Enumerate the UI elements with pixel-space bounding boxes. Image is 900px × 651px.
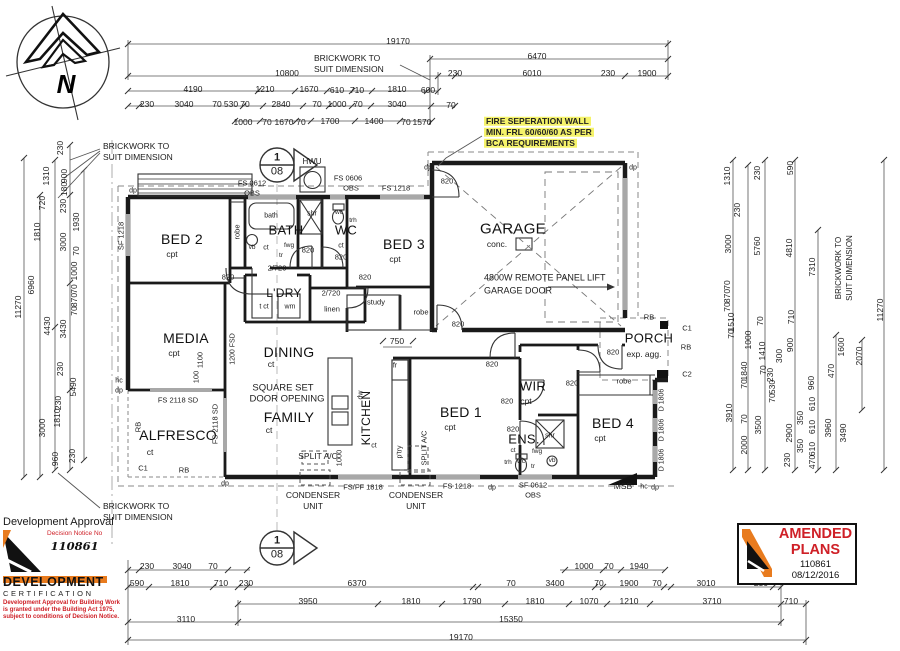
plan-label: CONDENSER xyxy=(286,491,340,500)
dimension-text: 1000 xyxy=(70,262,79,281)
dimension-text: 4810 xyxy=(785,239,794,258)
dimension-text: 230 xyxy=(733,203,742,217)
decision-notice-label: Decision Notice No xyxy=(47,530,102,537)
dimension-text: 15350 xyxy=(499,615,523,624)
porch-post-c2 xyxy=(657,370,668,378)
dimension-text: 300 xyxy=(775,349,784,363)
dimension-text: 3500 xyxy=(754,416,763,435)
dimension-text: 1940 xyxy=(630,562,649,571)
dimension-text: 350 xyxy=(796,439,805,453)
room-garage: GARAGE xyxy=(480,222,546,237)
dimension-text: 3000 xyxy=(59,233,68,252)
amended-line2: PLANS xyxy=(776,543,855,558)
dimension-text: 1410 xyxy=(758,342,767,361)
room-ens: ENS. xyxy=(508,433,540,446)
dimension-text: 1670 xyxy=(275,118,294,127)
dimension-text: 70 xyxy=(506,579,515,588)
dimension-text: 1810 xyxy=(402,597,421,606)
plan-label: FS 1218 xyxy=(443,482,471,490)
section-marker-sheet: 08 xyxy=(271,167,283,178)
dimension-text: 960 xyxy=(807,376,816,390)
dimension-text: 11270 xyxy=(14,295,23,318)
plan-label: vb xyxy=(249,245,256,252)
plan-label: robe xyxy=(233,224,241,239)
dimension-text: 70 xyxy=(72,246,81,255)
plan-label: SPLIT A/C xyxy=(420,431,428,466)
dimension-text: 1930 xyxy=(72,213,81,232)
plan-label: BRICKWORK TO xyxy=(103,502,169,511)
dimension-text: 1810 xyxy=(33,223,42,242)
room-bed4: BED 4 xyxy=(592,416,634,430)
plan-label: ct xyxy=(263,245,268,252)
dimension-text: 3950 xyxy=(299,597,318,606)
dimension-text: 3040 xyxy=(388,100,407,109)
dev-fine-print-2: is granted under the Building Act 1975, xyxy=(3,607,125,614)
development-certification-logo-icon xyxy=(3,530,43,574)
plan-label: shr xyxy=(545,433,555,440)
dimension-text: 820 xyxy=(222,273,235,281)
dimension-text: 1600 xyxy=(837,338,846,357)
dimension-text: 470 xyxy=(808,455,817,469)
dimension-text: 1810 xyxy=(526,597,545,606)
dimension-text: 70 xyxy=(604,562,613,571)
plan-label: RB xyxy=(644,313,654,321)
section-marker-sheet: 08 xyxy=(271,550,283,561)
dimension-text: 11270 xyxy=(876,298,885,321)
plan-label: RB xyxy=(134,422,142,432)
dimension-text: 70 xyxy=(756,316,765,325)
plan-label: dp xyxy=(651,485,659,492)
plan-label: D 1806 xyxy=(659,419,666,442)
compass-letter: N xyxy=(57,71,76,97)
plan-label: BRICKWORK TO xyxy=(103,142,169,151)
room-alfresco: ALFRESCO xyxy=(139,428,217,442)
dimension-text: 1790 xyxy=(463,597,482,606)
dimension-text: 6370 xyxy=(348,579,367,588)
plan-label: SUIT DIMENSION xyxy=(314,65,384,74)
dimension-text: 820 xyxy=(441,177,454,185)
room-bed3: BED 3 xyxy=(383,237,425,251)
plan-label: ct xyxy=(268,360,275,369)
dimension-text: 1700 xyxy=(321,117,340,126)
dimension-text: 230 xyxy=(601,69,615,78)
dimension-text: 70 xyxy=(652,579,661,588)
room-wc: WC xyxy=(335,224,357,237)
room-bath: BATH xyxy=(269,224,304,237)
note-fire-separation: BCA REQUIREMENTS xyxy=(484,139,577,148)
dimension-text: 70 xyxy=(208,562,217,571)
plan-label: SUIT DIMENSION xyxy=(103,153,173,162)
dimension-text: 350 xyxy=(796,411,805,425)
dimension-text: 7310 xyxy=(808,258,817,277)
plan-label: C2 xyxy=(682,370,692,378)
dimension-text: 3400 xyxy=(546,579,565,588)
dimension-text: 3000 xyxy=(724,235,733,254)
dimension-text: 230 xyxy=(56,141,65,155)
plan-label: FS 1218 xyxy=(382,184,410,192)
dimension-text: 590 xyxy=(786,161,795,175)
dimension-text: 1000 xyxy=(575,562,594,571)
dimension-text: 1570 xyxy=(413,118,432,127)
plan-label: C1 xyxy=(138,464,148,472)
dimension-text: 3960 xyxy=(824,419,833,438)
room-bed2: BED 2 xyxy=(161,232,203,246)
plan-label: SQUARE SET xyxy=(252,383,313,393)
dimension-text: 820 xyxy=(501,397,514,405)
plan-label: ct xyxy=(510,448,515,455)
dimension-text: 750 xyxy=(390,337,404,346)
plan-label: GARAGE DOOR xyxy=(484,287,552,296)
plan-label: p'try xyxy=(397,445,404,458)
dimension-text: 3040 xyxy=(173,562,192,571)
dimension-text: 70 xyxy=(401,118,410,127)
plan-label: tr xyxy=(531,464,535,471)
dimension-text: 4430 xyxy=(43,317,52,336)
dimension-text: 2900 xyxy=(785,424,794,443)
dimension-text: 710 xyxy=(350,86,364,95)
dimension-text: 70 xyxy=(262,118,271,127)
dimension-text: 1310 xyxy=(42,167,51,186)
dimension-text: 1810 xyxy=(388,85,407,94)
plan-label: RB xyxy=(179,466,189,474)
dimension-text: 1810 xyxy=(53,409,62,428)
room-dining: DINING xyxy=(264,345,315,359)
dev-fine-print-1: Development Approval for Building Work xyxy=(3,600,125,607)
dimension-text: 2070 xyxy=(855,347,864,366)
plan-label: robe xyxy=(413,308,428,316)
dimension-text: 3430 xyxy=(59,320,68,339)
dimension-text: 820 xyxy=(507,425,520,433)
dimension-text: 6470 xyxy=(528,52,547,61)
dimension-text: 1400 xyxy=(365,117,384,126)
plan-label: cpt xyxy=(168,349,179,358)
plan-label: FS 0606 xyxy=(334,174,362,182)
dimension-text: 1810 xyxy=(171,579,190,588)
dimension-text: 70 xyxy=(353,100,362,109)
plan-label: SF 1218 xyxy=(117,222,125,250)
dimension-text: 70 xyxy=(740,414,749,423)
plan-label: BRICKWORK TO xyxy=(835,237,843,299)
dimension-text: 1000 xyxy=(328,100,347,109)
dimension-text: 3490 xyxy=(839,424,848,443)
dimension-text: 70 xyxy=(296,118,305,127)
plan-label: OBS xyxy=(244,189,260,197)
plan-label: hc xyxy=(640,484,647,491)
dimension-text: 610 xyxy=(330,86,344,95)
north-arrow-icon xyxy=(6,6,120,120)
plan-label: wc xyxy=(335,210,343,217)
dimension-text: 610 xyxy=(808,397,817,411)
plan-label: robe xyxy=(616,377,631,385)
dimension-text: 2840 xyxy=(272,100,291,109)
dimension-text: 2/720 xyxy=(268,264,287,272)
dimension-text: 70 xyxy=(70,306,79,315)
dimension-text: 710 xyxy=(214,579,228,588)
dimension-text: 70 xyxy=(212,100,221,109)
dimension-text: 6960 xyxy=(27,276,36,295)
dimension-text: 710 xyxy=(784,597,798,606)
plan-label: SUIT DIMENSION xyxy=(846,235,854,301)
dimension-text: 1670 xyxy=(300,85,319,94)
dimension-text: 820 xyxy=(452,320,465,328)
dimension-text: 1900 xyxy=(620,579,639,588)
section-marker-number: 1 xyxy=(274,153,280,164)
dimension-text: 900 xyxy=(786,338,795,352)
plan-label: UNIT xyxy=(303,502,323,511)
plan-label: fwg xyxy=(284,243,294,250)
plan-label: dp xyxy=(424,165,432,172)
dimension-text: 1000 xyxy=(744,331,753,350)
dimension-text: 4190 xyxy=(184,85,203,94)
garage-door-arrowhead xyxy=(607,284,615,291)
dimension-text: 530 xyxy=(224,100,238,109)
room-porch: PORCH xyxy=(625,332,673,345)
dimension-text: 2/720 xyxy=(322,289,341,297)
amended-line1: AMENDED xyxy=(776,527,855,542)
dimension-text: 1070 xyxy=(580,597,599,606)
room-wir: WIR xyxy=(520,380,546,393)
dimension-text: 1310 xyxy=(723,167,732,186)
dimension-text: 230 xyxy=(68,449,77,463)
dimension-text: 230 xyxy=(140,100,154,109)
amended-stamp-logo-icon xyxy=(742,529,776,579)
dimension-text: 70 xyxy=(723,302,732,311)
plan-label: ct xyxy=(371,443,376,450)
plan-label: dp xyxy=(488,485,496,492)
dimension-text: 230 xyxy=(753,166,762,180)
dimension-text: 230 xyxy=(448,69,462,78)
dimension-text: 230 xyxy=(140,562,154,571)
plan-label: cpt xyxy=(594,434,605,443)
room-media: MEDIA xyxy=(163,331,209,345)
dimension-text: 3010 xyxy=(697,579,716,588)
section-marker-number: 1 xyxy=(274,536,280,547)
plan-label: FS/FF 1818 xyxy=(343,483,383,491)
plan-label: D 1806 xyxy=(659,389,666,412)
plan-label: ct xyxy=(266,426,273,435)
dimension-text: 70 xyxy=(594,579,603,588)
dimension-text: 3110 xyxy=(177,615,195,624)
plan-label: wm xyxy=(285,304,296,311)
dimension-text: 19170 xyxy=(449,633,473,642)
plan-label: t ct xyxy=(259,304,268,311)
plan-label: exp. agg. xyxy=(627,350,662,359)
dimension-text: 70 xyxy=(312,100,321,109)
dimension-text: 230 xyxy=(56,362,65,376)
plan-label: cpt xyxy=(166,250,177,259)
dimension-text: 820 xyxy=(607,348,620,356)
plan-label: OBS xyxy=(525,491,541,499)
plan-label: ct xyxy=(147,448,154,457)
dimension-text: 10800 xyxy=(275,69,299,78)
dimension-text: 1210 xyxy=(256,85,275,94)
dimension-text: 70 xyxy=(727,329,736,338)
dimension-text: 820 xyxy=(359,273,372,281)
plan-label: dw xyxy=(358,391,365,400)
dimension-text: 70 xyxy=(740,379,749,388)
plan-label: cpt xyxy=(444,423,455,432)
plan-label: HWU xyxy=(302,158,321,166)
plan-label: cpt xyxy=(520,397,531,406)
plan-label: MSB xyxy=(614,482,632,491)
amended-number: 110861 xyxy=(776,559,855,570)
plan-label: 4800W REMOTE PANEL LIFT xyxy=(484,274,606,283)
amended-plans-stamp: AMENDED PLANS 110861 08/12/2016 xyxy=(737,523,857,585)
dimension-text: 870 xyxy=(70,293,79,307)
dimension-text: 720 xyxy=(38,196,47,210)
decision-notice-number: 110861 xyxy=(47,539,102,553)
note-fire-separation: FIRE SEPERATION WALL xyxy=(484,117,591,126)
dimension-text: 1840 xyxy=(740,362,749,381)
dev-brand-name: DEVELOPMENT xyxy=(3,575,107,589)
floor-plan-sheet: N191706470BRICKWORK TOSUIT DIMENSION1080… xyxy=(0,0,900,651)
dimension-text: 820 xyxy=(486,360,499,368)
dimension-text: 820 xyxy=(566,379,579,387)
plan-label: UNIT xyxy=(406,502,426,511)
plan-label: FS 2118 SD xyxy=(158,396,198,404)
dimension-text: 100 xyxy=(192,371,200,384)
dimension-text: 1000 xyxy=(234,118,253,127)
dimension-text: 19170 xyxy=(386,37,410,46)
plan-label: bath xyxy=(264,213,278,220)
dimension-text: 960 xyxy=(51,452,60,466)
plan-label: fr xyxy=(393,363,397,370)
dimension-text: 610 xyxy=(808,420,817,434)
plan-label: FS 2118 SD xyxy=(211,404,219,444)
plan-label: C1 xyxy=(682,324,692,332)
dimension-text: 3710 xyxy=(703,597,722,606)
plan-label: tr xyxy=(279,253,283,260)
plan-label: DOOR OPENING xyxy=(250,394,325,404)
plan-label: trh xyxy=(349,218,357,225)
plan-label: D 1806 xyxy=(659,449,666,472)
note-fire-separation: MIN. FRL 60/60/60 AS PER xyxy=(484,128,594,137)
porch-post-c1 xyxy=(660,321,668,329)
plan-label: SF 0612 xyxy=(519,481,547,489)
dimension-text: 710 xyxy=(787,310,796,324)
dimension-text: 820 xyxy=(302,246,315,254)
plan-label: linen xyxy=(324,305,340,313)
dimension-text: 590 xyxy=(130,579,144,588)
dimension-text: 230 xyxy=(59,199,68,213)
plan-label: cpt xyxy=(389,255,400,264)
room-laundry: L'DRY xyxy=(266,287,302,299)
plan-label: FS 0612 xyxy=(238,179,266,187)
dimension-text: 3000 xyxy=(38,419,47,438)
plan-label: dp xyxy=(129,188,137,195)
dimension-text: 3910 xyxy=(725,404,734,423)
dimension-text: 2000 xyxy=(740,436,749,455)
dimension-text: 230 xyxy=(783,453,792,467)
plan-label: ct xyxy=(338,243,343,250)
dimension-text: 1900 xyxy=(638,69,657,78)
garage-detail xyxy=(436,167,621,326)
dimension-text: 530 xyxy=(768,380,777,394)
plan-label: dp xyxy=(115,388,123,395)
dimension-text: 6010 xyxy=(523,69,542,78)
dimension-text: 70 xyxy=(446,101,455,110)
dev-stamp-title: Development Approval xyxy=(3,516,125,528)
dev-brand-subtitle: CERTIFICATION xyxy=(3,589,125,598)
plan-label: shr xyxy=(307,211,317,218)
plan-label: dp xyxy=(629,165,637,172)
dimension-text: 870 xyxy=(723,289,732,303)
dimension-text: 180 xyxy=(60,182,69,196)
plan-label: 1200 FSD xyxy=(230,333,237,365)
plan-label: hc xyxy=(115,378,122,385)
dimension-text: 1210 xyxy=(620,597,639,606)
amended-date: 08/12/2016 xyxy=(776,570,855,581)
plan-label: CONDENSER xyxy=(389,491,443,500)
plan-label: fwg xyxy=(532,449,542,456)
dimension-text: 1100 xyxy=(196,352,204,368)
dimension-text: 3040 xyxy=(175,100,194,109)
dimension-text: 600 xyxy=(421,86,435,95)
plan-label: wc xyxy=(517,459,525,466)
plan-label: SPLIT A/C xyxy=(298,452,338,461)
plan-label: dp xyxy=(221,481,229,488)
dimension-text: 230 xyxy=(239,579,253,588)
plan-label: OBS xyxy=(343,184,359,192)
dimension-text: 820 xyxy=(335,253,348,261)
development-approval-stamp: Development Approval Decision Notice No … xyxy=(3,516,125,621)
dev-fine-print-3: subject to conditions of Decision Notice… xyxy=(3,614,125,621)
plan-label: trh xyxy=(504,460,512,467)
dimension-text: 70 xyxy=(768,393,777,402)
dimension-text: 470 xyxy=(827,364,836,378)
plan-label: study xyxy=(367,298,385,306)
plan-label: vb xyxy=(549,458,556,465)
room-bed1: BED 1 xyxy=(440,405,482,419)
plan-label: conc. xyxy=(487,240,507,249)
dimension-text: 70 xyxy=(240,100,249,109)
plan-label: BRICKWORK TO xyxy=(314,54,380,63)
plan-label: RB xyxy=(681,343,691,351)
room-family: FAMILY xyxy=(264,410,315,424)
dimension-text: 1000 xyxy=(335,450,343,467)
dimension-text: 5490 xyxy=(69,378,78,397)
dimension-text: 5760 xyxy=(753,237,762,256)
